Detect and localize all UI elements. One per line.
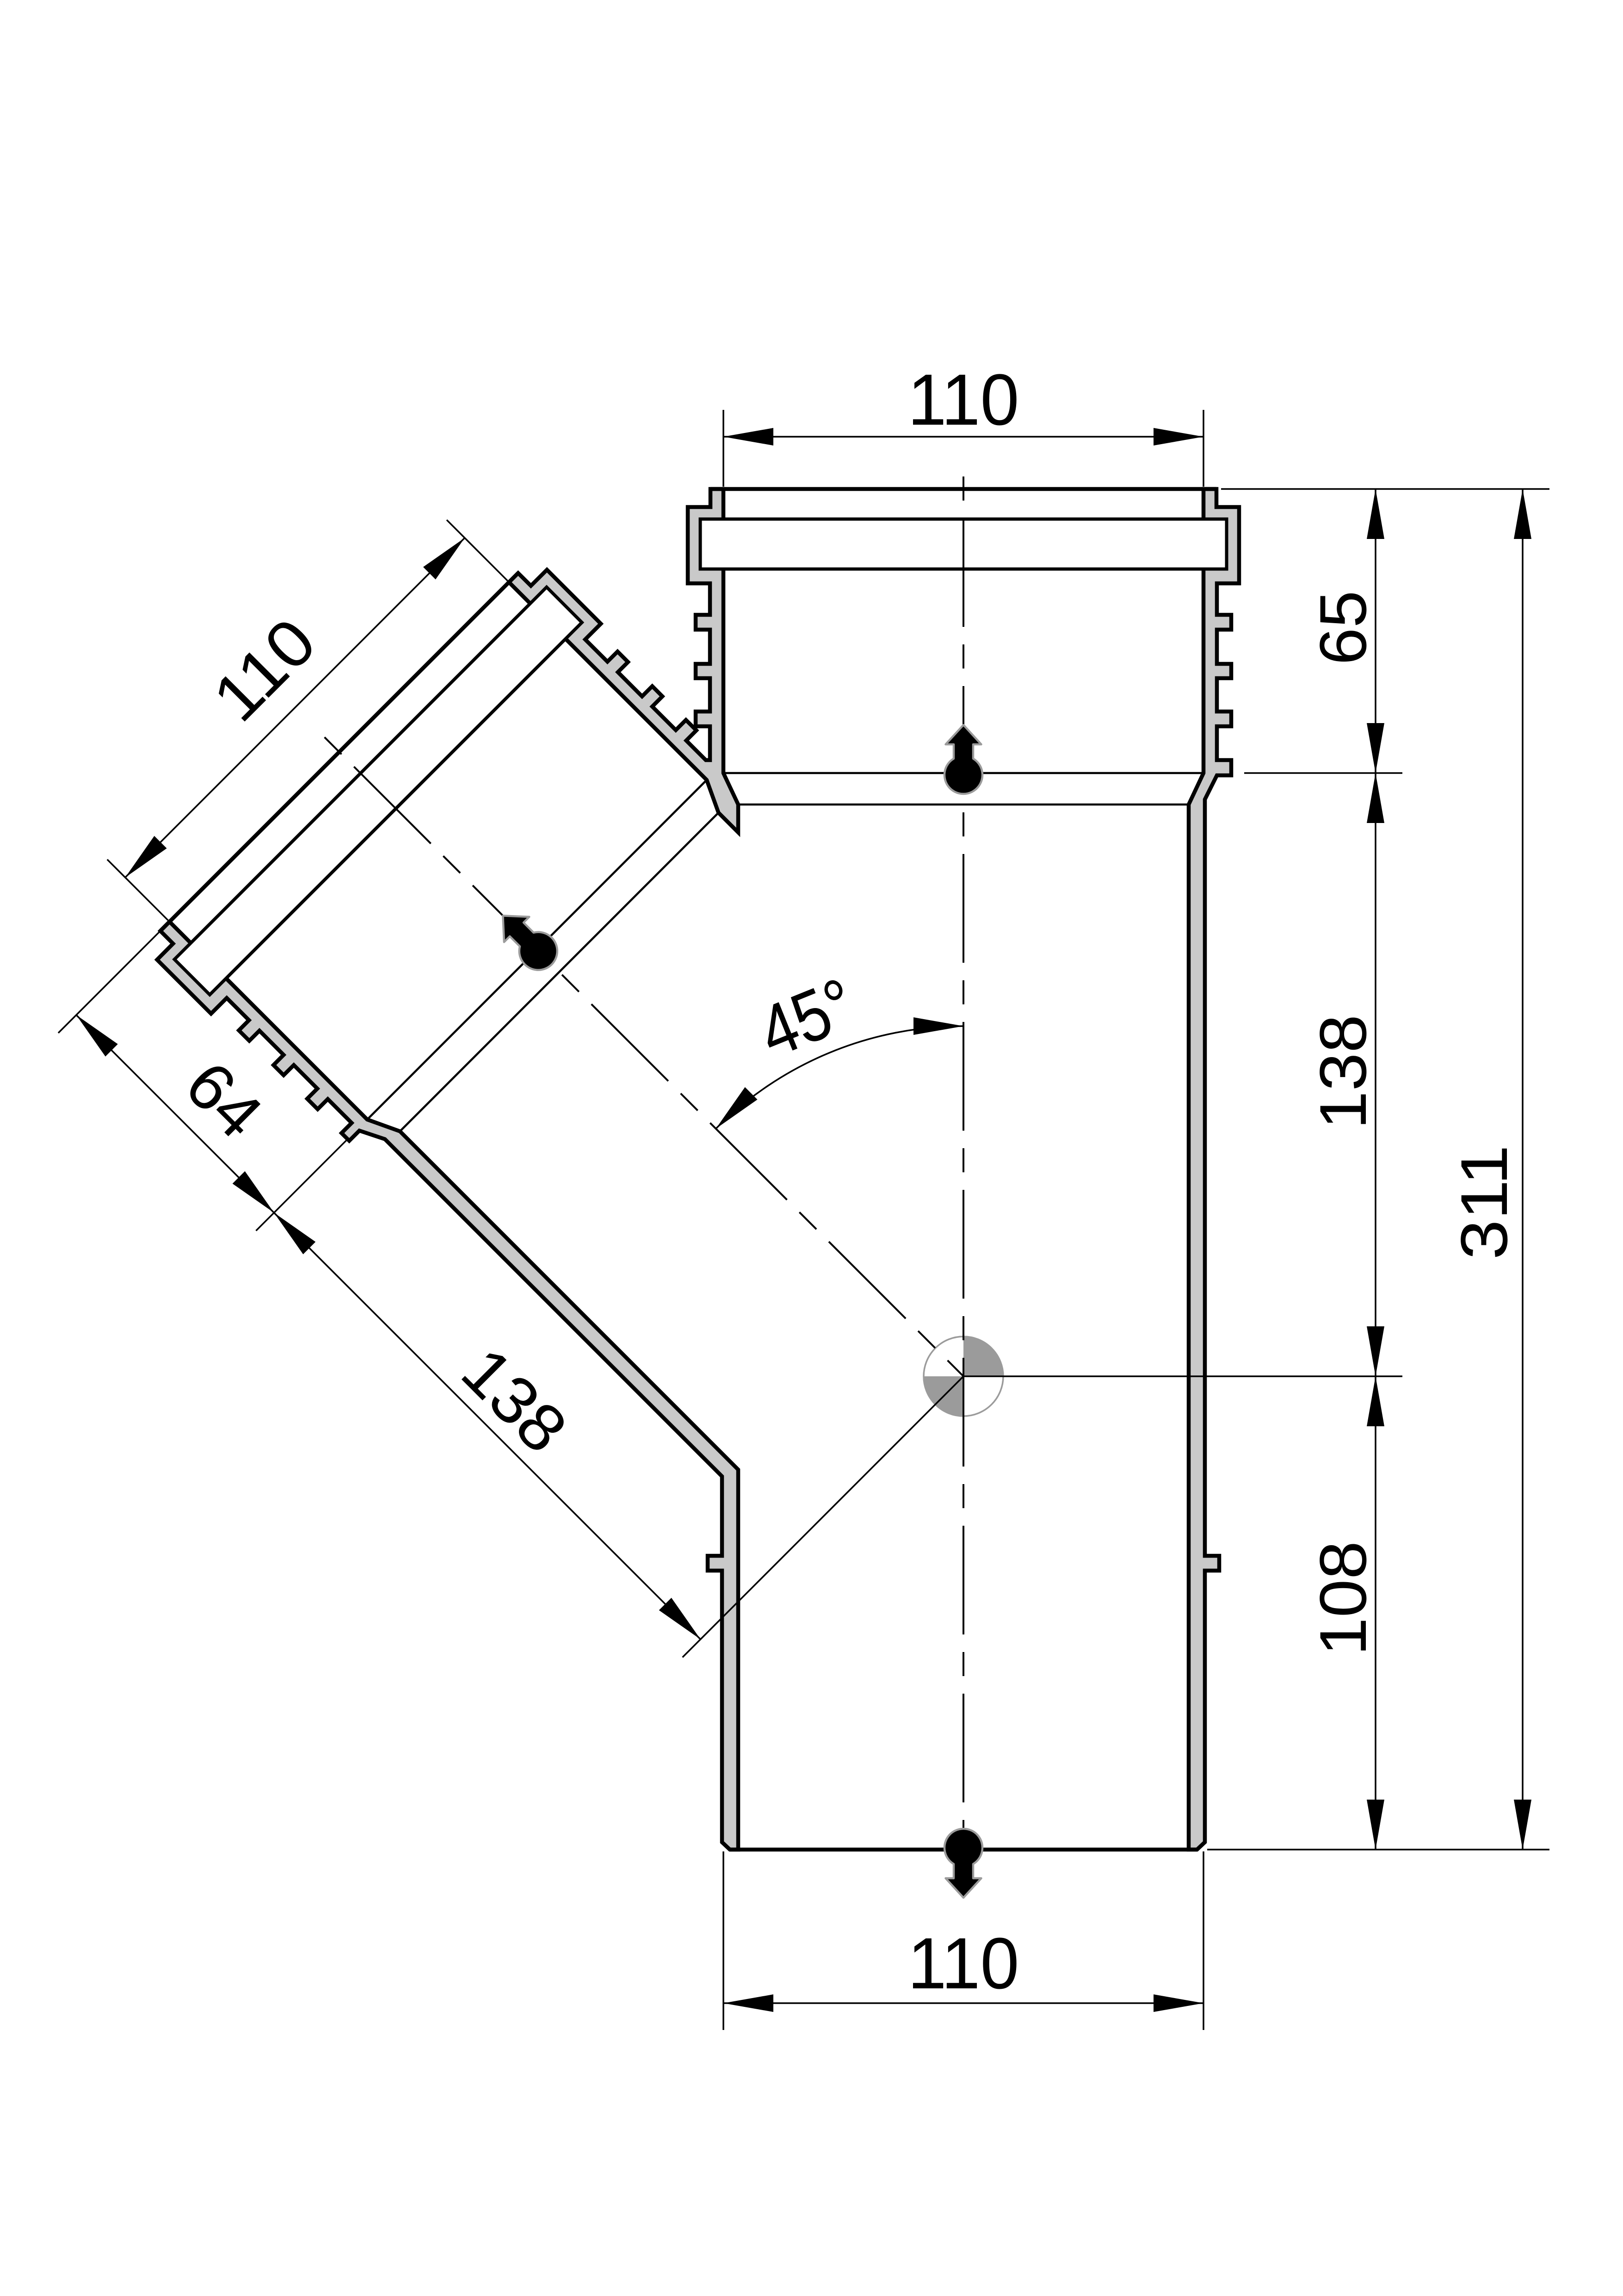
svg-text:138: 138: [1307, 1015, 1380, 1129]
svg-text:110: 110: [908, 1923, 1019, 2004]
svg-text:108: 108: [1307, 1541, 1380, 1656]
svg-text:110: 110: [908, 359, 1019, 440]
svg-text:65: 65: [1307, 591, 1380, 665]
svg-text:311: 311: [1448, 1145, 1521, 1260]
